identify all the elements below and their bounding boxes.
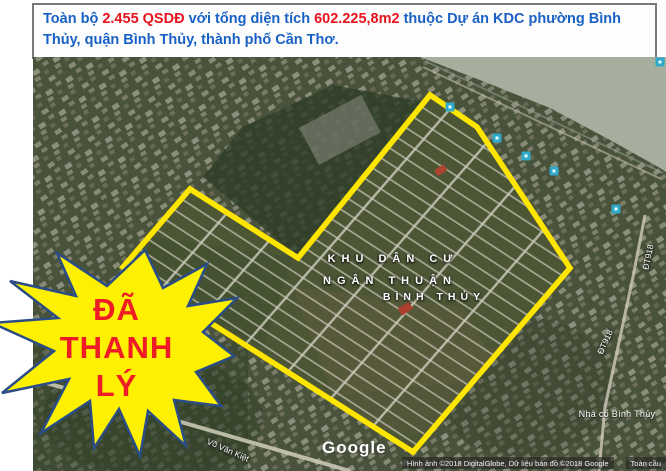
poi-marker-icon[interactable] (522, 152, 531, 161)
header-text-segment: với tổng diện tích (185, 11, 315, 27)
map-label-poi: Nhà cổ Bình Thủy (579, 409, 656, 419)
attribution-region: Toàn cầu (626, 457, 666, 469)
header-text-segment: Toàn bộ (43, 11, 102, 27)
poi-marker-icon[interactable] (446, 103, 455, 112)
google-logo[interactable]: Google (322, 438, 387, 458)
attribution-imagery: Hình ảnh ©2018 DigitalGlobe, Dữ liệu bản… (402, 457, 614, 469)
liquidated-stamp-line: ĐÃ (0, 291, 233, 329)
header-note: Toàn bộ 2.455 QSDĐ với tổng diện tích 60… (32, 3, 657, 59)
map-attribution: Hình ảnh ©2018 DigitalGlobe, Dữ liệu bản… (402, 457, 666, 469)
poi-marker-icon[interactable] (656, 58, 665, 67)
header-total-area: 602.225,8m2 (314, 11, 399, 27)
map-label-district-line2: NGÂN THUẬN (323, 275, 457, 287)
map-label-district-line1: KHU DÂN CƯ (328, 253, 459, 265)
liquidated-stamp-line: THANH (0, 329, 233, 367)
poi-marker-icon[interactable] (493, 134, 502, 143)
poi-marker-icon[interactable] (550, 167, 559, 176)
liquidated-stamp-text: ĐÃ THANH LÝ (0, 291, 233, 405)
liquidated-stamp-line: LÝ (0, 367, 233, 405)
map-label-ward: BÌNH THỦY (383, 291, 485, 303)
poi-marker-icon[interactable] (612, 205, 621, 214)
header-parcel-count: 2.455 QSDĐ (102, 11, 184, 27)
